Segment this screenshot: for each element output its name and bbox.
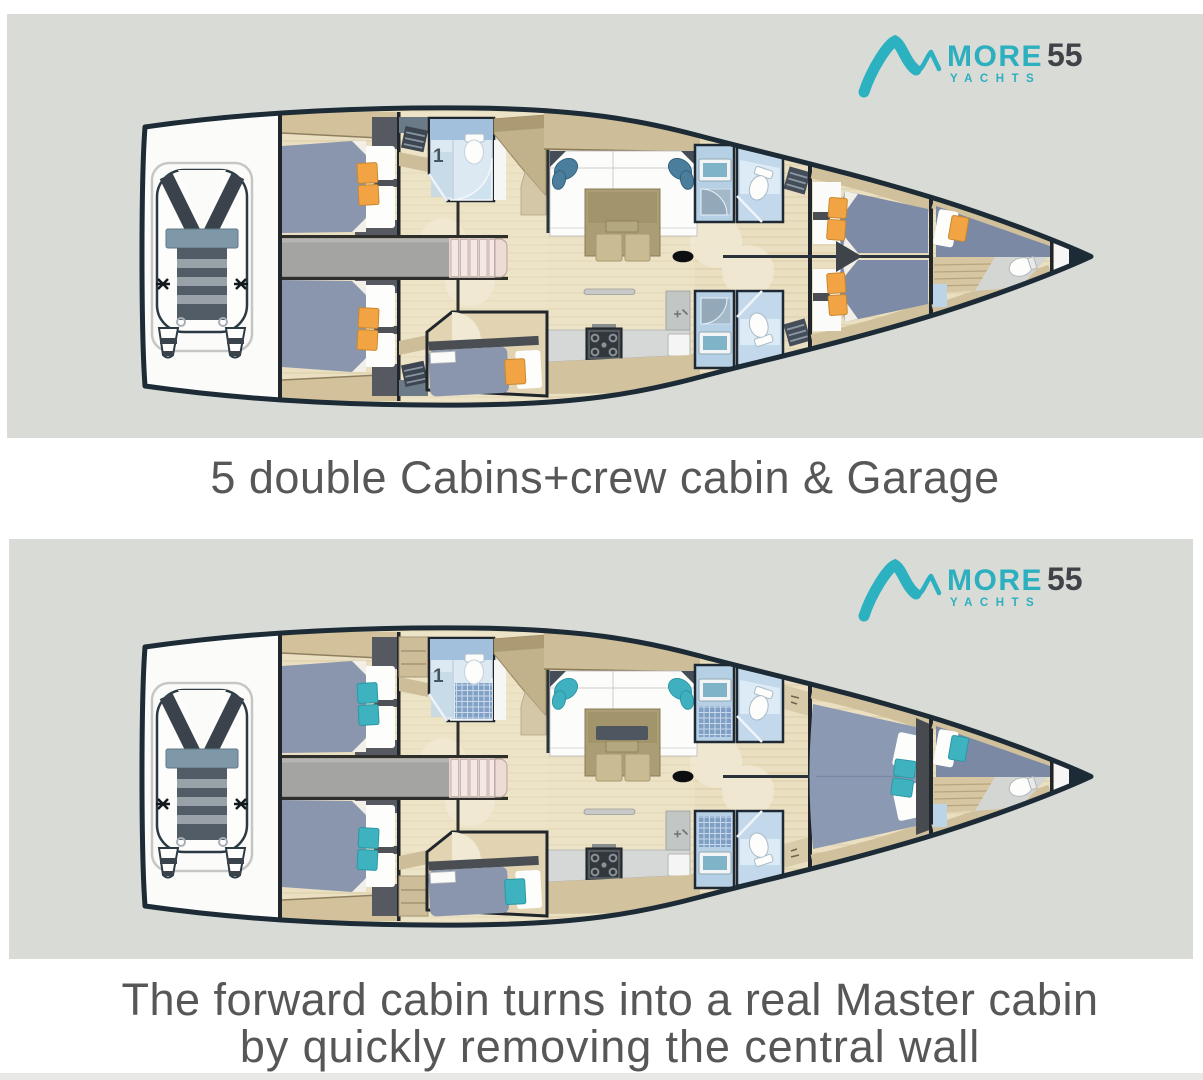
svg-text:1: 1 — [433, 146, 444, 167]
svg-text:1: 1 — [433, 666, 444, 687]
svg-text:The forward cabin turns into a: The forward cabin turns into a real Mast… — [122, 974, 1099, 1025]
svg-text:5 double Cabins+crew cabin & G: 5 double Cabins+crew cabin & Garage — [210, 452, 999, 503]
svg-text:by quickly removing the centra: by quickly removing the central wall — [240, 1021, 980, 1072]
